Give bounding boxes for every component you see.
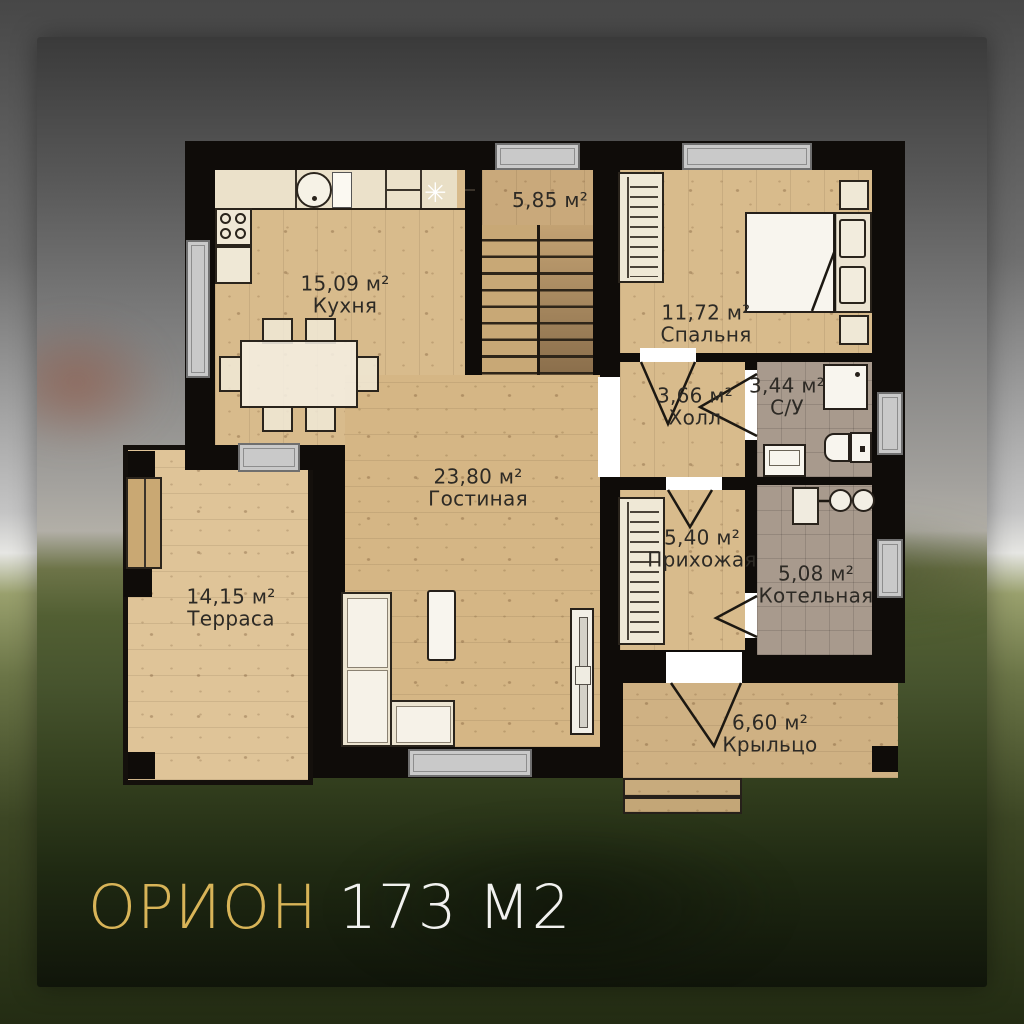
room-label-living: 23,80 м² Гостиная bbox=[428, 466, 528, 511]
bedroom-wardrobe bbox=[618, 172, 664, 283]
sofa-cushion bbox=[347, 598, 388, 668]
burner bbox=[235, 213, 246, 224]
room-label-bedroom: 11,72 м² Спальня bbox=[660, 302, 751, 347]
room-name: Гостиная bbox=[428, 488, 528, 510]
room-name: Холл bbox=[657, 407, 733, 429]
wardrobe-hangers bbox=[630, 178, 658, 277]
project-name: ОРИОН bbox=[88, 872, 318, 943]
room-area: 5,40 м² bbox=[647, 527, 757, 549]
wardrobe-rail bbox=[627, 177, 629, 278]
poster: ✳ bbox=[0, 0, 1024, 1024]
kitchen-cabinet bbox=[215, 246, 252, 284]
stairs-divider bbox=[537, 225, 540, 375]
terrace-post bbox=[124, 569, 152, 597]
room-label-kitchen: 15,09 м² Кухня bbox=[300, 273, 389, 318]
fridge-snowflake-icon: ✳ bbox=[424, 180, 447, 207]
sofa-section-vertical bbox=[341, 592, 392, 747]
bench-divider bbox=[144, 479, 146, 567]
burner bbox=[220, 213, 231, 224]
room-name: Крыльцо bbox=[722, 734, 817, 756]
sink-inner bbox=[769, 450, 800, 466]
boiler-tank bbox=[829, 489, 852, 512]
room-area: 15,09 м² bbox=[300, 273, 389, 295]
door-entry-boiler bbox=[745, 593, 757, 638]
shower bbox=[823, 364, 868, 410]
terrace-post bbox=[128, 451, 155, 478]
kitchen-sink bbox=[296, 172, 332, 208]
room-label-terrace: 14,15 м² Терраса bbox=[186, 586, 275, 631]
boiler-unit bbox=[792, 487, 819, 525]
bedroom-nightstand bbox=[839, 315, 869, 345]
sofa-cushion bbox=[347, 670, 388, 743]
stairs-treads-left bbox=[482, 225, 537, 375]
door-living-hall bbox=[598, 377, 620, 477]
toilet-tank bbox=[850, 432, 872, 463]
room-area: 23,80 м² bbox=[428, 466, 528, 488]
shower-drain bbox=[855, 372, 860, 377]
dining-chair bbox=[305, 406, 336, 432]
burner bbox=[235, 228, 246, 239]
project-area: 173 М2 bbox=[338, 872, 571, 943]
door-bedroom bbox=[640, 348, 696, 362]
burner bbox=[220, 228, 231, 239]
sink-tap bbox=[312, 196, 317, 201]
stairs-treads-right bbox=[540, 225, 593, 375]
bathroom-sink bbox=[763, 444, 806, 477]
room-name: Кухня bbox=[300, 295, 389, 317]
room-name: Котельная bbox=[758, 585, 873, 607]
dining-chair bbox=[219, 356, 242, 392]
boiler-tank bbox=[852, 489, 875, 512]
tv-stand bbox=[570, 608, 594, 735]
room-name: С/У bbox=[749, 397, 825, 419]
dining-table bbox=[240, 340, 358, 408]
tv-console bbox=[575, 666, 591, 685]
room-area: 3,44 м² bbox=[749, 375, 825, 397]
terrace-post bbox=[128, 752, 155, 779]
kitchen-stove bbox=[215, 208, 252, 246]
window-stairs-top bbox=[495, 143, 580, 170]
bedroom-nightstand bbox=[839, 180, 869, 210]
toilet-button bbox=[860, 446, 865, 452]
room-label-bathroom: 3,44 м² С/У bbox=[749, 375, 825, 420]
porch-step-1 bbox=[623, 778, 742, 797]
porch-step-2 bbox=[623, 797, 742, 814]
window-kitchen-left bbox=[186, 240, 210, 378]
room-label-stairs: 5,85 м² bbox=[512, 189, 588, 211]
room-area: 11,72 м² bbox=[660, 302, 751, 324]
toilet-bowl bbox=[824, 433, 850, 462]
room-label-porch: 6,60 м² Крыльцо bbox=[722, 712, 817, 757]
room-name: Терраса bbox=[186, 608, 275, 630]
cutting-board bbox=[332, 172, 352, 208]
window-bathroom-right bbox=[877, 392, 903, 455]
bed-duvet bbox=[745, 212, 835, 313]
bed-pillow bbox=[839, 266, 866, 304]
dining-chair bbox=[356, 356, 379, 392]
coffee-table bbox=[427, 590, 456, 661]
sofa-cushion bbox=[396, 706, 451, 743]
window-dining-terrace bbox=[238, 443, 300, 472]
counter-wood-end bbox=[457, 170, 465, 208]
porch-post bbox=[872, 746, 898, 772]
room-name: Спальня bbox=[660, 324, 751, 346]
room-label-entry: 5,40 м² Прихожая bbox=[647, 527, 757, 572]
wardrobe-rail bbox=[627, 502, 629, 640]
window-boiler-right bbox=[877, 539, 903, 598]
bed-pillow bbox=[839, 219, 866, 258]
terrace-bench bbox=[126, 477, 162, 569]
door-hall-entry bbox=[666, 477, 722, 490]
dining-chair bbox=[262, 406, 293, 432]
room-area: 6,60 м² bbox=[722, 712, 817, 734]
door-entry-porch bbox=[666, 652, 742, 683]
window-bedroom-top bbox=[682, 143, 812, 170]
sofa-section-horizontal bbox=[390, 700, 455, 747]
room-area: 14,15 м² bbox=[186, 586, 275, 608]
room-label-hall: 3,66 м² Холл bbox=[657, 385, 733, 430]
room-area: 3,66 м² bbox=[657, 385, 733, 407]
window-living-bottom bbox=[408, 749, 532, 777]
room-name: Прихожая bbox=[647, 549, 757, 571]
room-label-boiler: 5,08 м² Котельная bbox=[758, 563, 873, 608]
room-area: 5,08 м² bbox=[758, 563, 873, 585]
project-title: ОРИОН 173 М2 bbox=[88, 872, 571, 943]
